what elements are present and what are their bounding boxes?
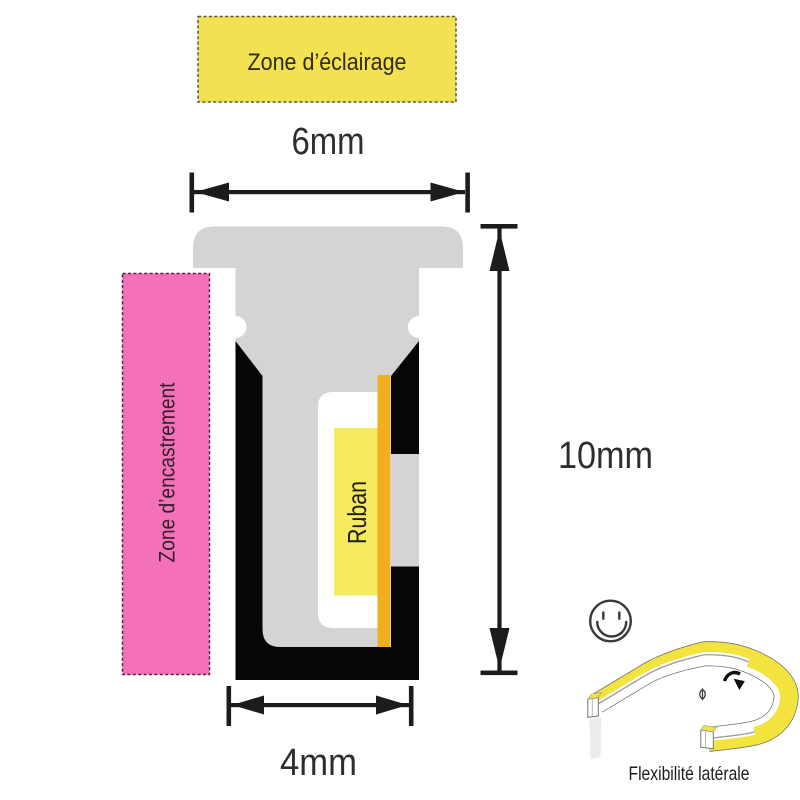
svg-text:Zone d’encastrement: Zone d’encastrement (155, 383, 180, 563)
svg-text:Zone d’éclairage: Zone d’éclairage (248, 49, 407, 76)
svg-text:Ruban: Ruban (342, 481, 372, 544)
svg-text:Flexibilité latérale: Flexibilité latérale (629, 763, 750, 785)
svg-text:4mm: 4mm (280, 742, 357, 784)
svg-text:6mm: 6mm (292, 121, 365, 163)
svg-text:10mm: 10mm (558, 435, 653, 477)
